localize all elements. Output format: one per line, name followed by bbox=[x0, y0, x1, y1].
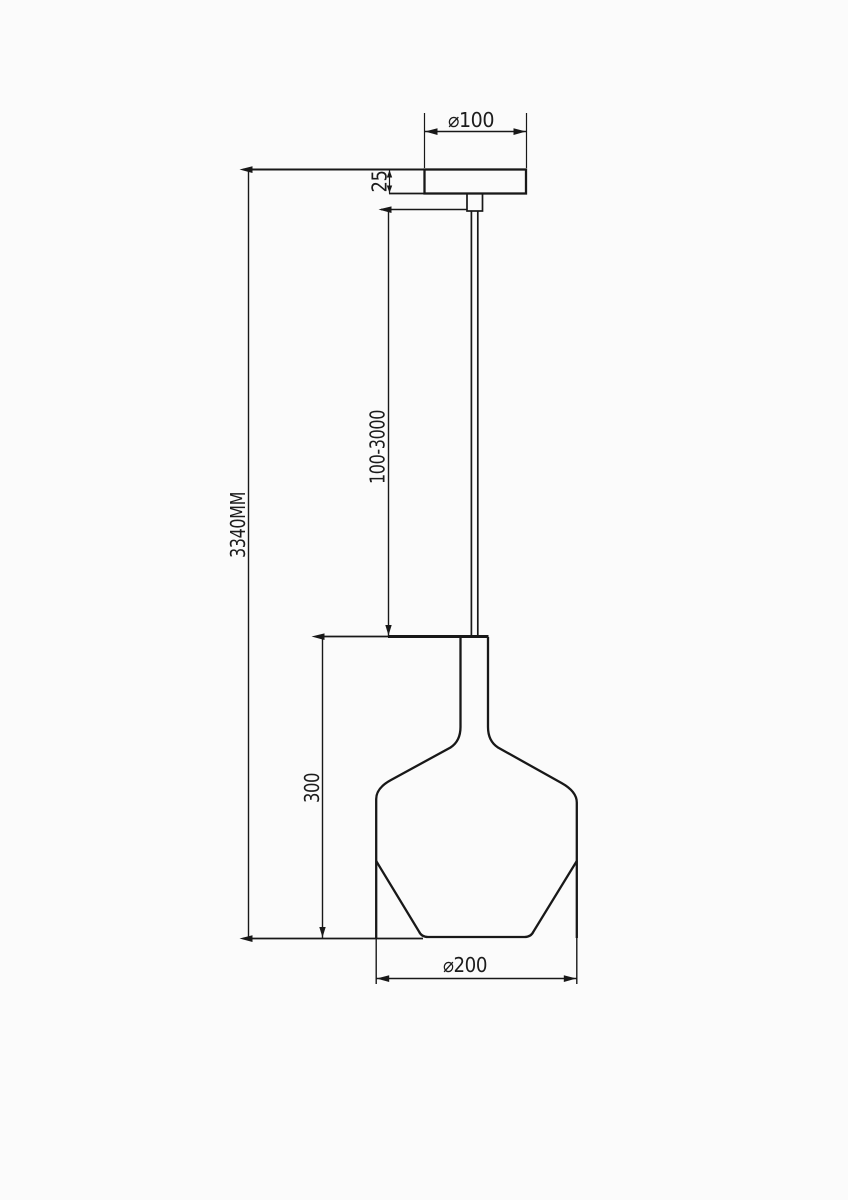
shade-height-label: 300 bbox=[300, 773, 324, 803]
overall-height-label: 3340MM bbox=[226, 492, 250, 558]
canopy-thickness-label: 25 bbox=[368, 171, 392, 193]
canopy-diameter-label: ⌀100 bbox=[448, 108, 494, 132]
drawing-page: 3340MM ⌀100 25 100-3000 bbox=[0, 0, 848, 1200]
drawing-canvas: 3340MM ⌀100 25 100-3000 bbox=[0, 0, 848, 1200]
suspension-length-label: 100-3000 bbox=[366, 410, 390, 484]
dimension-canopy-thickness: 25 bbox=[368, 170, 393, 194]
shade-diameter-label: ⌀200 bbox=[443, 953, 487, 977]
